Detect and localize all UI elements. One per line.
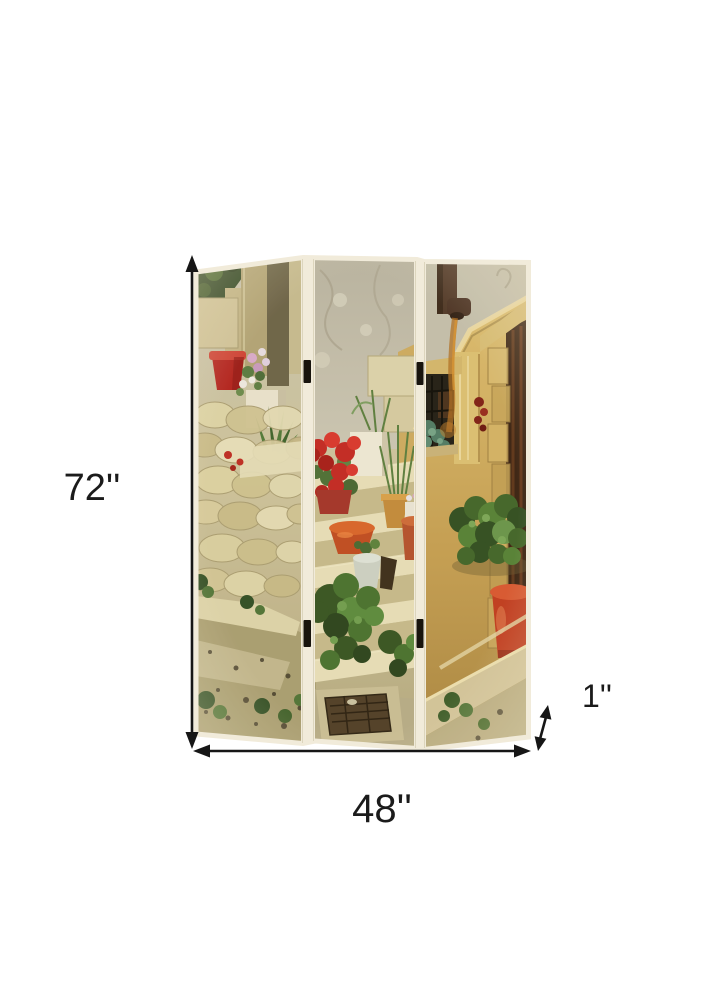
hinge-icon xyxy=(417,619,424,648)
divider-screen xyxy=(187,250,535,760)
hinge-icon xyxy=(304,620,312,647)
dimension-diagram: 72'' 48'' 1'' xyxy=(0,0,718,1000)
arrow-down-icon xyxy=(186,732,199,749)
depth-dimension-arrow xyxy=(535,705,552,751)
arrow-up-icon xyxy=(186,255,199,272)
hinge-icon xyxy=(417,362,424,385)
width-label: 48'' xyxy=(352,787,412,831)
height-label: 72'' xyxy=(64,467,121,509)
depth-label: 1'' xyxy=(582,678,612,714)
arrow-down-left-icon xyxy=(535,736,547,751)
arrow-right-icon xyxy=(514,745,531,758)
product-dimension-image: 72'' 48'' 1'' xyxy=(0,0,718,1000)
arrow-left-icon xyxy=(193,745,210,758)
arrow-up-right-icon xyxy=(540,705,552,720)
hinge-icon xyxy=(304,360,312,383)
